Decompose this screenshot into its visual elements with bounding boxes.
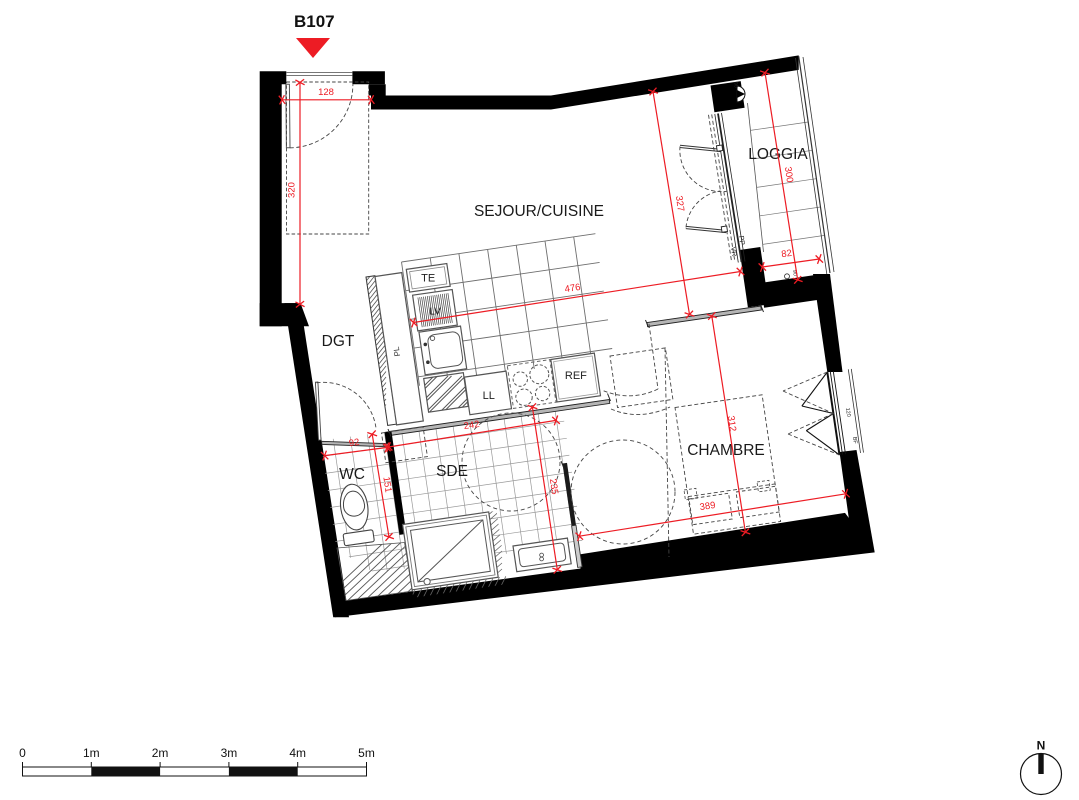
svg-text:120: 120 (844, 407, 851, 417)
svg-text:SDE: SDE (436, 463, 468, 480)
svg-text:B107: B107 (294, 12, 335, 31)
svg-text:2m: 2m (152, 746, 169, 760)
svg-text:151: 151 (380, 476, 393, 493)
svg-text:LV: LV (429, 307, 441, 318)
svg-text:389: 389 (699, 500, 716, 513)
svg-text:PL: PL (392, 346, 402, 357)
svg-text:BF: BF (851, 436, 858, 444)
svg-text:REF: REF (565, 370, 587, 382)
svg-text:0: 0 (19, 746, 26, 760)
svg-text:327: 327 (673, 195, 686, 212)
svg-text:312: 312 (725, 415, 738, 432)
svg-text:3m: 3m (221, 746, 238, 760)
svg-text:WC: WC (339, 466, 365, 483)
svg-text:TE: TE (421, 272, 435, 284)
svg-text:N: N (1037, 739, 1046, 753)
svg-text:LL: LL (483, 390, 495, 402)
svg-text:92: 92 (348, 437, 360, 449)
svg-text:476: 476 (564, 282, 581, 295)
svg-text:82: 82 (781, 248, 793, 260)
svg-text:5m: 5m (358, 746, 375, 760)
svg-text:4m: 4m (289, 746, 306, 760)
svg-text:242: 242 (463, 419, 480, 432)
svg-text:128: 128 (318, 87, 334, 98)
svg-text:VR: VR (729, 246, 737, 257)
svg-text:CHAMBRE: CHAMBRE (687, 442, 765, 459)
svg-text:1m: 1m (83, 746, 100, 760)
svg-text:SEJOUR/CUISINE: SEJOUR/CUISINE (474, 203, 604, 220)
svg-text:DGT: DGT (322, 333, 355, 350)
svg-text:300: 300 (782, 166, 795, 183)
svg-text:235: 235 (547, 478, 560, 495)
svg-text:320: 320 (287, 182, 298, 198)
svg-text:90: 90 (732, 81, 739, 88)
svg-text:PP: PP (737, 235, 745, 246)
